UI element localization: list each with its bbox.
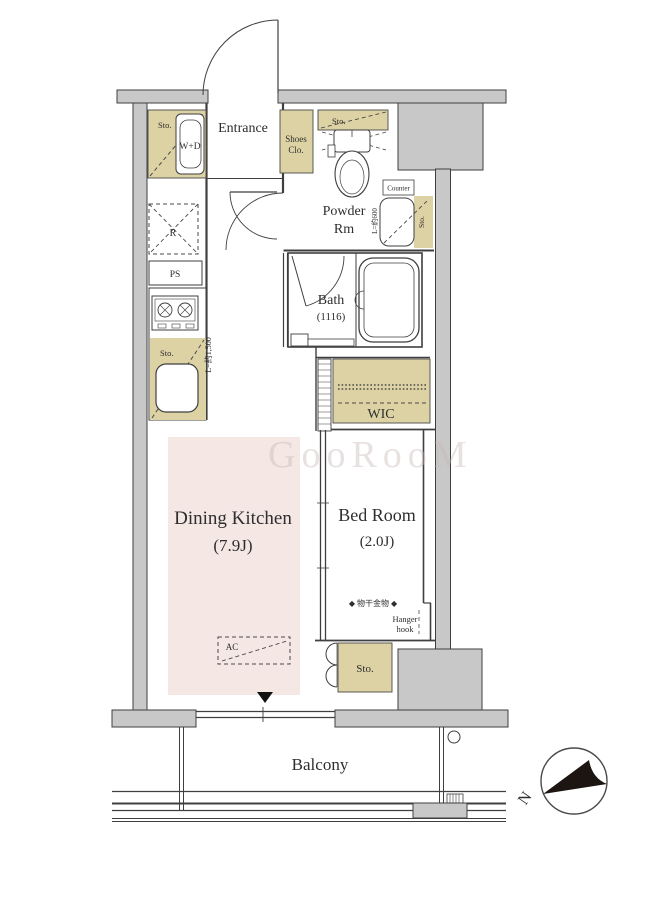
hallway-doors [226, 192, 283, 250]
kitchen-storage-label: Sto. [160, 348, 173, 358]
bath-sill [308, 339, 354, 346]
bedroom-storage-label: Sto. [356, 663, 374, 675]
wall-top-right [278, 90, 506, 103]
bath-step [291, 334, 308, 346]
entry-marker-triangle [257, 692, 273, 703]
wall-top-right-block [398, 103, 483, 170]
powder-storage-strip [318, 110, 388, 130]
bed-room-size: (2.0J) [360, 534, 395, 550]
bath-size-label: (1116) [317, 311, 346, 323]
powder-sink-icon [380, 198, 414, 246]
hanger-hook-label-2: hook [397, 624, 415, 634]
entrance-door [203, 20, 278, 95]
bath-label: Bath [318, 293, 344, 308]
watermark: GooRooM [268, 434, 473, 476]
wd-storage-label: Sto. [158, 120, 171, 130]
bathtub-inner-icon [364, 263, 414, 337]
wall-right-column [436, 169, 451, 650]
stove-knob-3 [186, 324, 194, 328]
dining-kitchen-label: Dining Kitchen [174, 508, 292, 529]
pipe-space-label: PS [170, 270, 181, 280]
stove-knob-2 [172, 324, 180, 328]
balcony-label: Balcony [292, 755, 349, 774]
bifold-door [326, 643, 337, 687]
washer-dryer-label: W+D [179, 142, 200, 152]
powder-room-label-2: Rm [334, 222, 354, 237]
balcony-window [196, 707, 335, 722]
kitchen-area: R PS Sto. L=約1,500 [149, 204, 213, 420]
powder-door-arc [226, 193, 283, 250]
floor-plan: Sto. W+D Entrance Shoes Clo. Sto. Powder… [0, 0, 648, 900]
north-label: N [515, 788, 536, 808]
wall-bottom-right-block [398, 649, 482, 710]
powder-storage-label: Sto. [332, 116, 345, 126]
wic-label: WIC [367, 407, 394, 422]
kitchen-sink-icon [156, 364, 198, 412]
hanger-hook-label-1: Hanger [392, 614, 417, 624]
shoes-closet-label-2: Clo. [288, 145, 303, 155]
wall-left [133, 103, 147, 710]
toilet-seat-icon [340, 160, 364, 194]
entrance-area: Entrance Shoes Clo. [218, 110, 313, 173]
counter-length-label: L=約600 [370, 208, 379, 234]
stove-knob-1 [158, 324, 166, 328]
counter-label: Counter [387, 185, 410, 193]
entrance-door-arc [203, 20, 278, 95]
balcony-step-block [413, 803, 467, 818]
bed-room-label: Bed Room [338, 505, 416, 525]
floor-plan-page: Sto. W+D Entrance Shoes Clo. Sto. Powder… [0, 0, 648, 900]
dining-kitchen: Dining Kitchen (7.9J) AC [168, 437, 300, 703]
balcony-drain [447, 794, 463, 803]
bedroom-storage: Sto. [326, 643, 392, 692]
wall-top-left [117, 90, 208, 103]
powder-room-label-1: Powder [323, 204, 366, 219]
counter-storage-label: Sto. [417, 216, 426, 228]
entrance-label: Entrance [218, 121, 268, 136]
wall-bottom-left-band [112, 710, 196, 727]
bath-room: Bath (1116) [288, 253, 422, 347]
hanger-hook-jp-label: ◆ 物干金物 ◆ [349, 598, 398, 608]
bed-room: Bed Room (2.0J) ◆ 物干金物 ◆ Hanger hook [338, 505, 419, 634]
toilet-handle-icon [328, 145, 335, 157]
compass-icon: N [515, 748, 607, 814]
kitchen-length-label: L=約1,500 [203, 337, 213, 372]
shoes-closet-label-1: Shoes [285, 134, 307, 144]
wall-bottom-right-band [335, 710, 508, 727]
refrigerator-label: R [170, 228, 177, 239]
balcony: Balcony [112, 727, 506, 822]
washer-dryer-area: Sto. W+D [148, 110, 206, 178]
wic-area: WIC [318, 359, 430, 431]
dining-kitchen-size: (7.9J) [213, 536, 252, 555]
ac-label: AC [226, 642, 239, 652]
balcony-pole-circle [448, 731, 460, 743]
